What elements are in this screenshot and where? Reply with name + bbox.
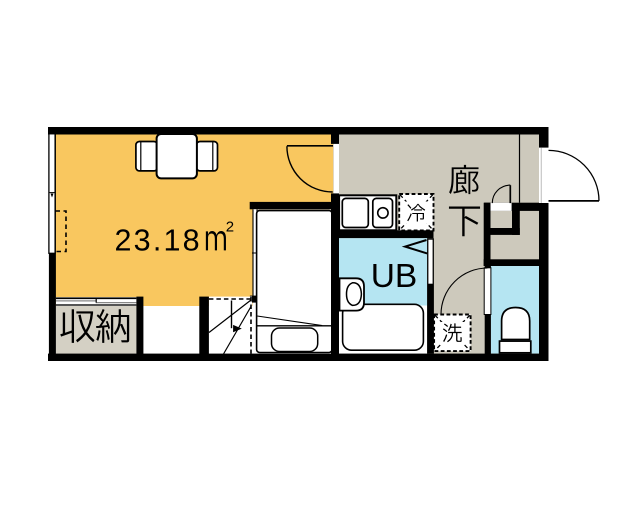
- svg-text:23.18: 23.18: [115, 223, 202, 257]
- svg-text:UB: UB: [371, 258, 418, 295]
- svg-text:2: 2: [226, 218, 234, 235]
